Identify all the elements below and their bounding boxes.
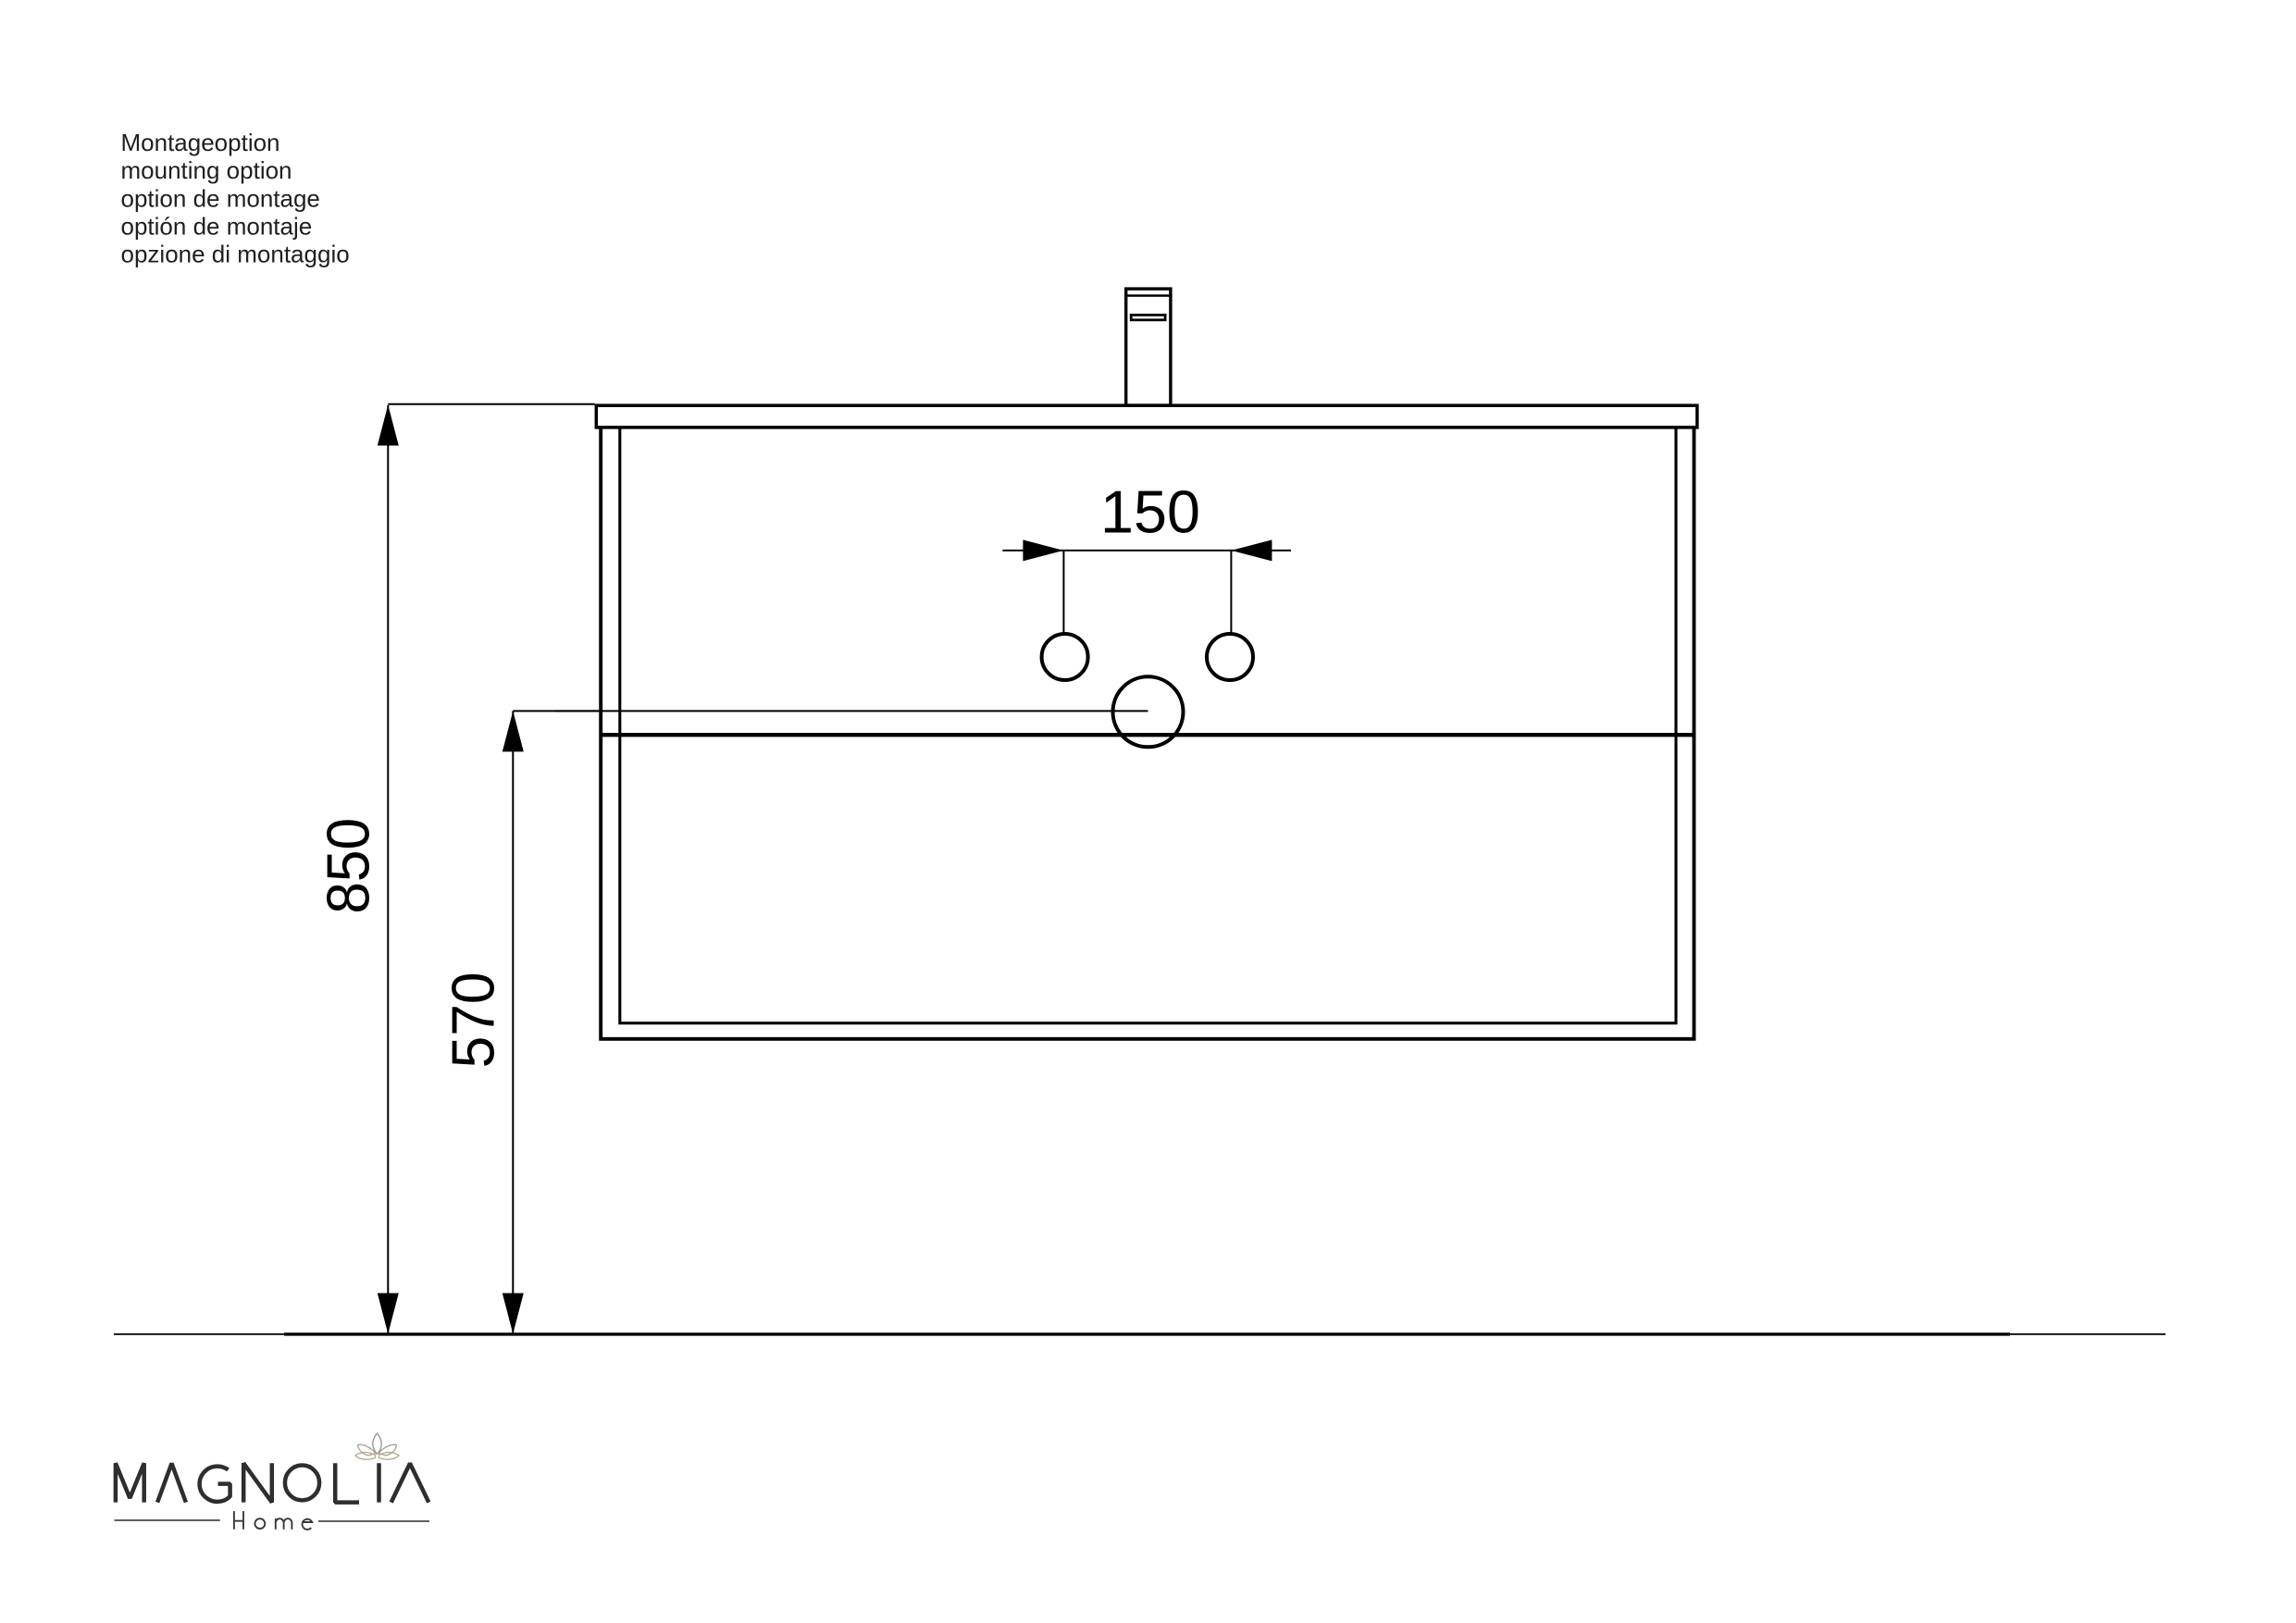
svg-text:optión de montaje: optión de montaje [121, 212, 313, 240]
svg-text:570: 570 [440, 972, 507, 1068]
svg-text:850: 850 [315, 818, 382, 914]
svg-text:option de montage: option de montage [121, 184, 320, 212]
svg-text:mounting option: mounting option [121, 156, 292, 184]
svg-text:opzione di montaggio: opzione di montaggio [121, 241, 350, 268]
svg-text:Montageoption: Montageoption [121, 129, 280, 156]
svg-text:150: 150 [1100, 477, 1200, 545]
